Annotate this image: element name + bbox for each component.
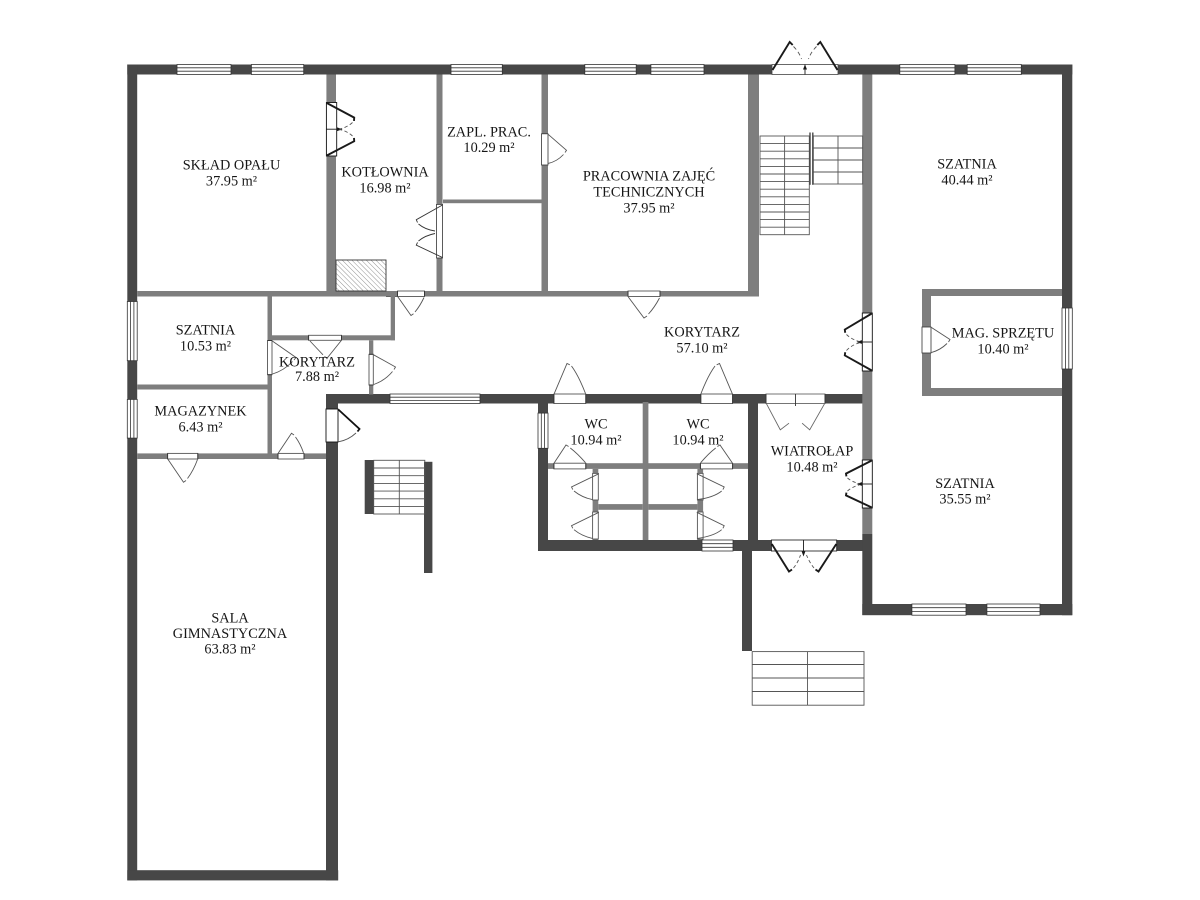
svg-text:10.94 m²: 10.94 m² xyxy=(672,433,723,449)
svg-text:57.10 m²: 57.10 m² xyxy=(676,341,727,357)
svg-text:WIATROŁAP: WIATROŁAP xyxy=(771,444,854,460)
svg-text:SZATNIA: SZATNIA xyxy=(935,476,995,492)
svg-text:10.53 m²: 10.53 m² xyxy=(180,339,231,355)
svg-text:SZATNIA: SZATNIA xyxy=(176,323,236,339)
svg-text:63.83 m²: 63.83 m² xyxy=(204,642,255,658)
svg-text:PRACOWNIA ZAJĘĆ: PRACOWNIA ZAJĘĆ xyxy=(583,168,715,185)
svg-text:KOTŁOWNIA: KOTŁOWNIA xyxy=(341,165,429,181)
svg-text:6.43 m²: 6.43 m² xyxy=(178,420,222,436)
svg-text:WC: WC xyxy=(686,417,709,433)
svg-text:10.48 m²: 10.48 m² xyxy=(786,460,837,476)
svg-text:37.95 m²: 37.95 m² xyxy=(206,174,257,190)
svg-text:37.95 m²: 37.95 m² xyxy=(623,201,674,217)
svg-text:16.98 m²: 16.98 m² xyxy=(359,181,410,197)
svg-text:40.44 m²: 40.44 m² xyxy=(941,173,992,189)
svg-text:ZAPL. PRAC.: ZAPL. PRAC. xyxy=(447,125,531,141)
svg-text:KORYTARZ: KORYTARZ xyxy=(664,325,740,341)
svg-text:SKŁAD OPAŁU: SKŁAD OPAŁU xyxy=(183,158,281,174)
svg-text:MAGAZYNEK: MAGAZYNEK xyxy=(154,404,247,420)
svg-text:WC: WC xyxy=(584,417,607,433)
svg-text:TECHNICZNYCH: TECHNICZNYCH xyxy=(593,185,704,201)
svg-text:35.55 m²: 35.55 m² xyxy=(939,492,990,508)
svg-text:10.29 m²: 10.29 m² xyxy=(463,140,514,156)
svg-text:MAG. SPRZĘTU: MAG. SPRZĘTU xyxy=(952,326,1055,342)
svg-text:SZATNIA: SZATNIA xyxy=(937,157,997,173)
svg-text:10.40 m²: 10.40 m² xyxy=(977,342,1028,358)
svg-text:GIMNASTYCZNA: GIMNASTYCZNA xyxy=(173,626,288,642)
svg-text:SALA: SALA xyxy=(211,611,249,627)
svg-text:10.94 m²: 10.94 m² xyxy=(570,433,621,449)
svg-text:7.88 m²: 7.88 m² xyxy=(295,369,339,385)
